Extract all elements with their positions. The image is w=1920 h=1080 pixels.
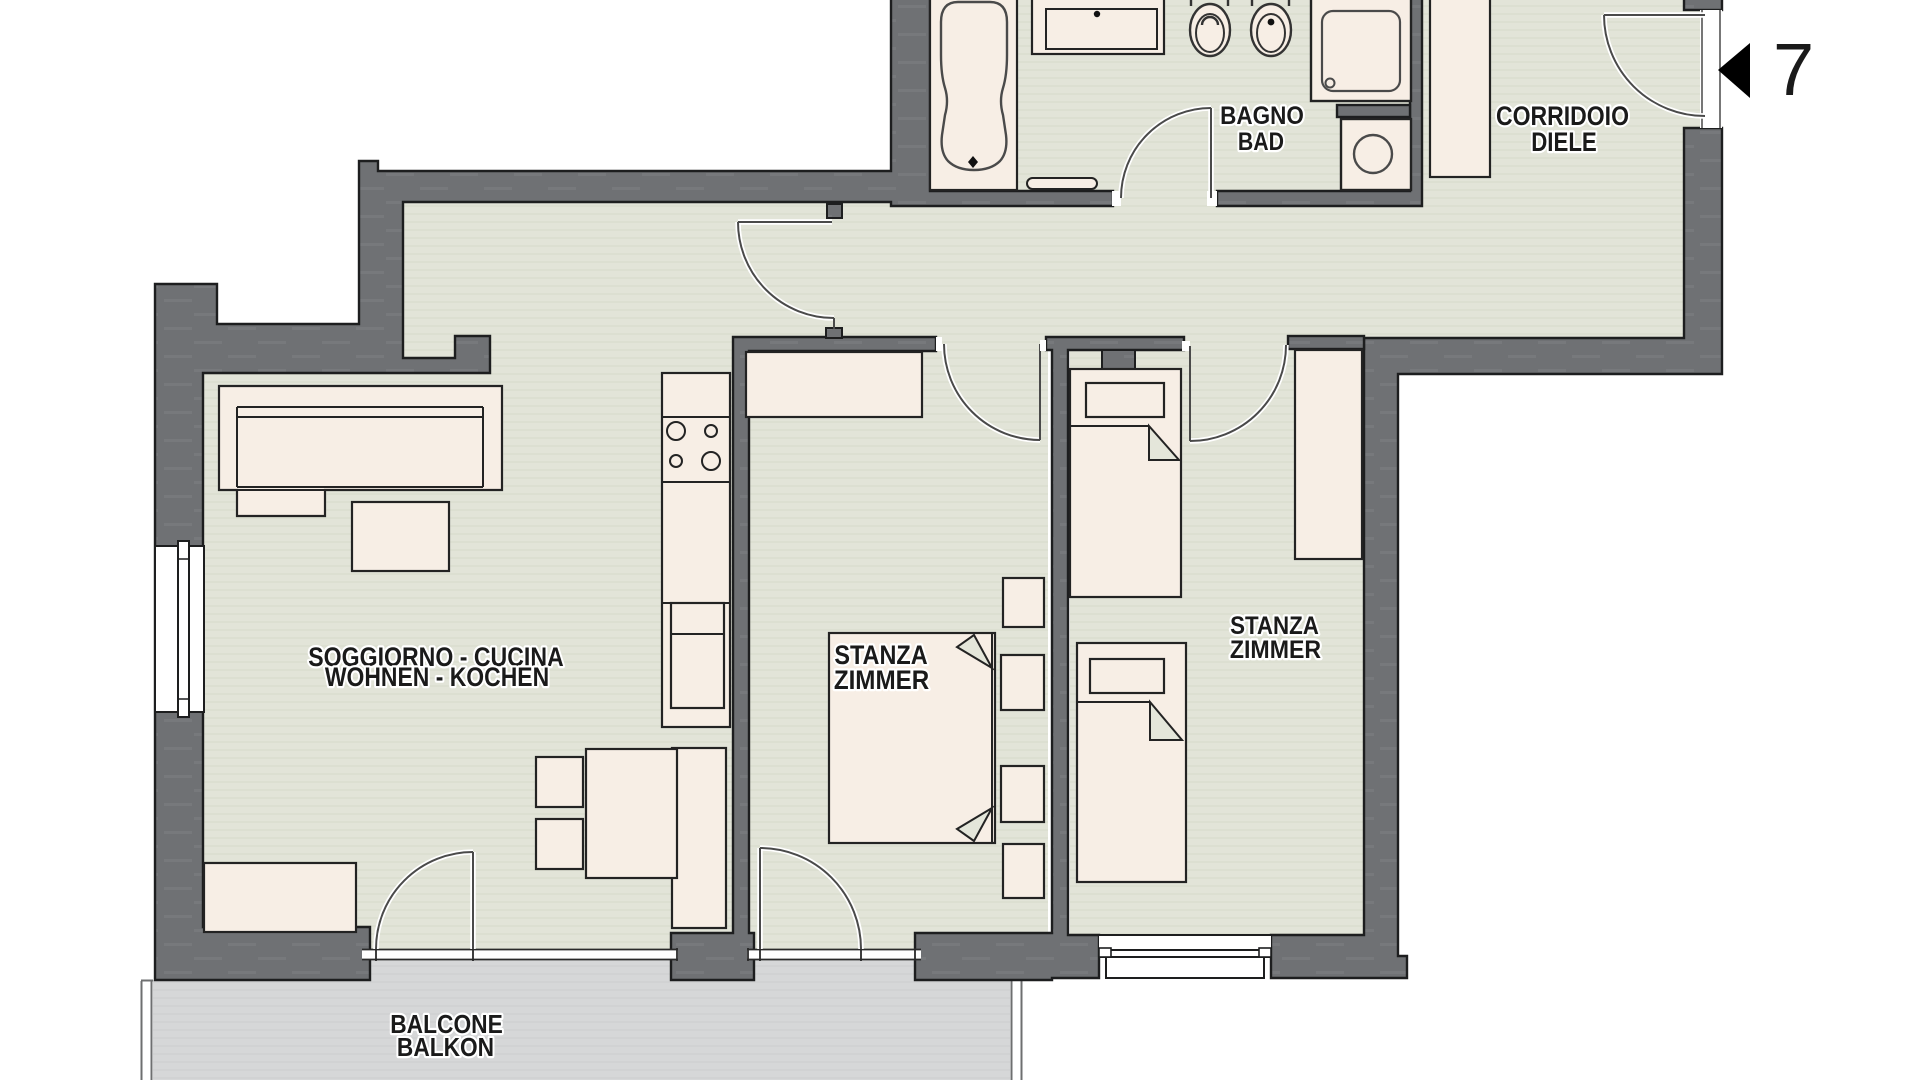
svg-text:CORRIDOIO: CORRIDOIO bbox=[1496, 101, 1629, 131]
svg-text:ZIMMER: ZIMMER bbox=[1230, 636, 1321, 664]
svg-text:BAD: BAD bbox=[1238, 127, 1284, 155]
svg-text:BAGNO: BAGNO bbox=[1220, 102, 1304, 130]
svg-text:ZIMMER: ZIMMER bbox=[834, 666, 929, 695]
svg-text:WOHNEN - KOCHEN: WOHNEN - KOCHEN bbox=[325, 662, 549, 692]
svg-text:DIELE: DIELE bbox=[1531, 128, 1597, 157]
svg-text:BALKON: BALKON bbox=[397, 1034, 494, 1063]
svg-text:7: 7 bbox=[1773, 28, 1814, 111]
